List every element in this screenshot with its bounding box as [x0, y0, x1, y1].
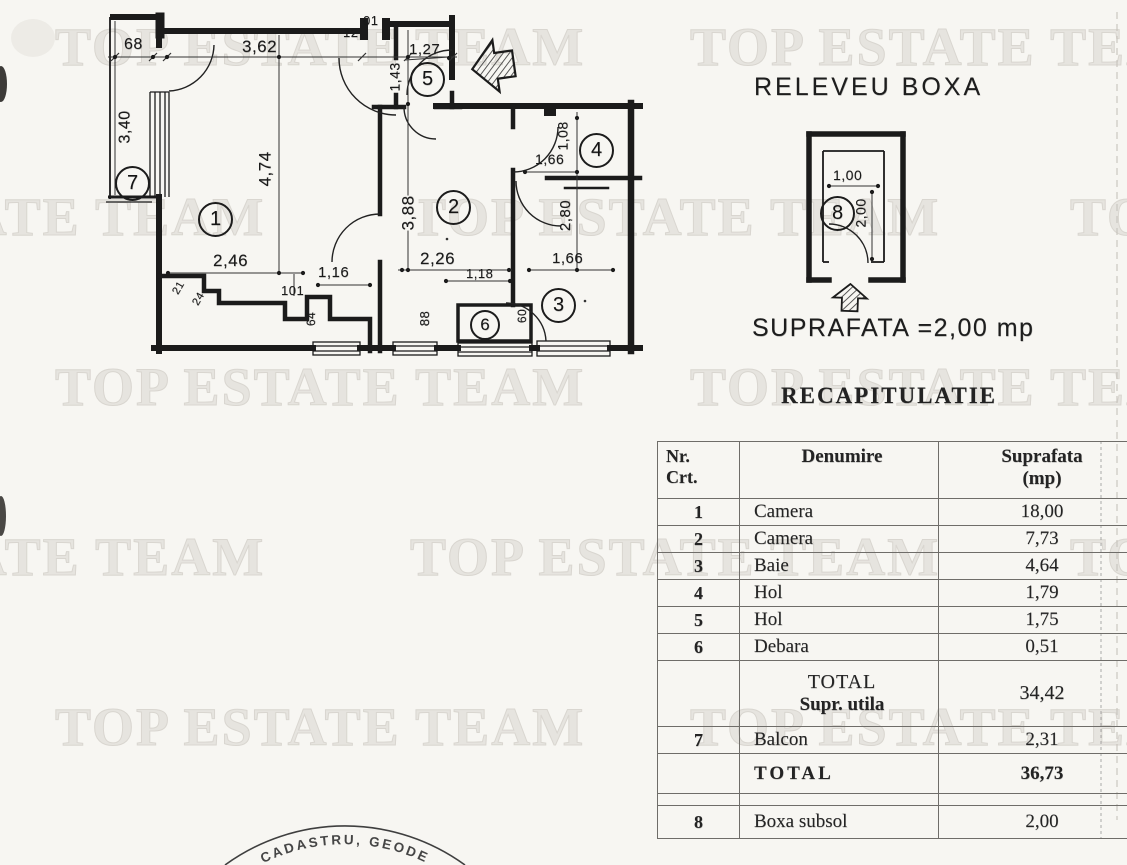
- dim-label-88: 88: [417, 311, 432, 326]
- dim-label-2-26: 2,26: [420, 249, 455, 269]
- room-label-2: 2: [436, 190, 471, 225]
- grand-total-row: TOTAL 36,73: [658, 754, 1127, 794]
- boxa-entrance-arrow-icon: [833, 283, 868, 311]
- table-row: 6 Debara 0,51: [658, 634, 1127, 661]
- room-label-5: 5: [410, 62, 445, 97]
- scanned-floor-plan-page: TOP ESTATE TEAM TOP ESTATE TEAM TOP ESTA…: [0, 0, 1127, 865]
- header-denumire: Denumire: [740, 442, 939, 499]
- header-nr-crt: Nr. Crt.: [658, 442, 740, 499]
- header-suprafata: Suprafata (mp): [939, 442, 1127, 499]
- dim-label-boxa-2-00: 2,00: [853, 198, 869, 227]
- total-utila-label: TOTAL Supr. utila: [740, 661, 939, 727]
- stamp-text: CADASTRU, GEODE: [258, 832, 432, 865]
- dim-label-3-62: 3,62: [242, 37, 277, 57]
- svg-text:CADASTRU, GEODE: CADASTRU, GEODE: [258, 832, 432, 865]
- table-row: 4 Hol 1,79: [658, 580, 1127, 607]
- recap-table: Nr. Crt. Denumire Suprafata (mp) 1 Camer…: [657, 441, 1127, 839]
- room-label-6: 6: [470, 310, 500, 340]
- room-label-4: 4: [579, 133, 614, 168]
- total-utila-row: TOTAL Supr. utila 34,42: [658, 661, 1127, 727]
- dim-label-1-66-hol: 1,66: [535, 151, 564, 167]
- dim-label-01: 01: [363, 13, 378, 28]
- dim-label-4-74: 4,74: [256, 151, 276, 186]
- dim-label-2-46: 2,46: [213, 251, 248, 271]
- dim-label-2-80: 2,80: [557, 200, 574, 231]
- table-row: 7 Balcon 2,31: [658, 727, 1127, 754]
- table-header-row: Nr. Crt. Denumire Suprafata (mp): [658, 442, 1127, 499]
- spacer-row: [658, 794, 1127, 806]
- boxa-row: 8 Boxa subsol 2,00: [658, 806, 1127, 839]
- table-row: 3 Baie 4,64: [658, 553, 1127, 580]
- dim-label-boxa-1-00: 1,00: [833, 167, 862, 183]
- room-label-3: 3: [541, 288, 576, 323]
- dim-label-1-43: 1,43: [387, 62, 403, 91]
- boxa-area-text: SUPRAFATA =2,00 mp: [752, 314, 1034, 343]
- dim-label-101: 101: [281, 283, 304, 298]
- releveu-boxa-title: RELEVEU BOXA: [754, 73, 983, 102]
- table-row: 2 Camera 7,73: [658, 526, 1127, 553]
- table-row: 5 Hol 1,75: [658, 607, 1127, 634]
- recapitulatie-title: RECAPITULATIE: [781, 383, 997, 409]
- entrance-arrow-icon: [469, 38, 518, 95]
- dim-label-64: 64: [304, 312, 318, 326]
- dim-label-12: 12: [343, 25, 358, 40]
- dim-label-60: 60: [515, 309, 529, 323]
- stamp: CADASTRU, GEODE: [225, 826, 465, 865]
- dim-label-68: 68: [124, 36, 143, 54]
- room-label-8: 8: [820, 196, 855, 231]
- room-label-1: 1: [198, 202, 233, 237]
- table-row: 1 Camera 18,00: [658, 499, 1127, 526]
- dim-label-1-18: 1,18: [466, 266, 493, 281]
- dim-label-3-88: 3,88: [399, 195, 419, 230]
- dim-label-1-08: 1,08: [555, 121, 571, 150]
- dim-label-1-27: 1,27: [409, 41, 440, 58]
- room-label-7: 7: [115, 166, 150, 201]
- dim-label-1-16: 1,16: [318, 264, 349, 281]
- dim-label-3-40: 3,40: [117, 110, 135, 143]
- dim-label-1-66-baie: 1,66: [552, 250, 583, 267]
